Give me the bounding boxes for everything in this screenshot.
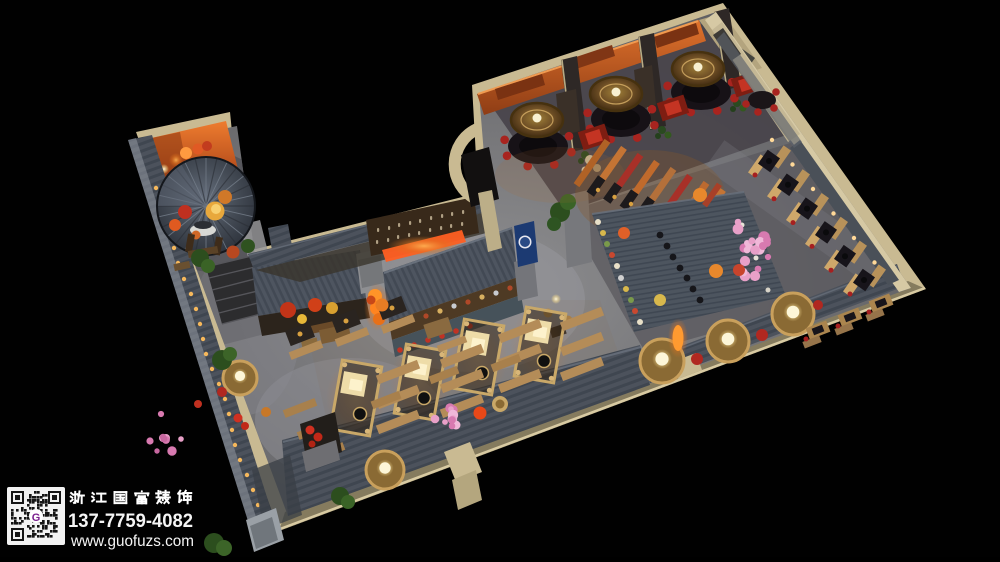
svg-text:www.guofuzs.com: www.guofuzs.com (70, 533, 194, 550)
svg-text:G: G (32, 512, 41, 524)
svg-text:137-7759-4082: 137-7759-4082 (68, 511, 193, 532)
